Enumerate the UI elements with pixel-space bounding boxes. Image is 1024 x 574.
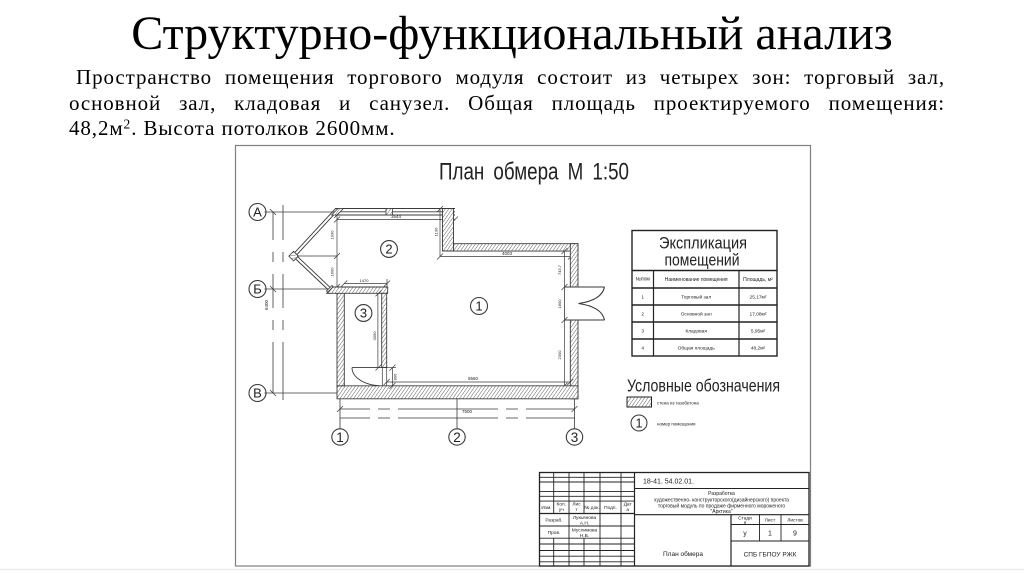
svg-text:художественно- конструкторског: художественно- конструкторского(дизайнер…: [654, 497, 789, 504]
svg-text:Торговый зал: Торговый зал: [681, 294, 711, 301]
svg-text:18-41. 54.02.01.: 18-41. 54.02.01.: [643, 479, 694, 486]
svg-text:В: В: [253, 386, 262, 401]
svg-text:Б: Б: [253, 282, 262, 297]
svg-text:Подп.: Подп.: [604, 505, 617, 511]
svg-text:2: 2: [453, 430, 461, 445]
svg-text:Площадь, м²: Площадь, м²: [743, 277, 773, 283]
svg-text:№пом: №пом: [636, 277, 651, 283]
svg-text:1: 1: [636, 416, 643, 430]
svg-text:Лис: Лис: [572, 502, 581, 508]
svg-text:Кладовая: Кладовая: [685, 329, 707, 335]
svg-text:Общая площадь: Общая площадь: [678, 346, 716, 352]
svg-text:Лист: Лист: [765, 518, 776, 524]
svg-text:Пров.: Пров.: [548, 530, 561, 536]
svg-text:СПБ ГБПОУ РЖК: СПБ ГБПОУ РЖК: [744, 552, 797, 559]
svg-text:Разработка: Разработка: [708, 491, 735, 497]
svg-text:Условные обозначения: Условные обозначения: [627, 375, 780, 395]
svg-text:1: 1: [768, 531, 772, 538]
svg-text:Разраб.: Разраб.: [545, 518, 562, 524]
svg-text:3: 3: [571, 430, 579, 445]
svg-text:5560: 5560: [468, 376, 479, 381]
svg-text:48,2м²: 48,2м²: [751, 346, 766, 352]
svg-text:уч: уч: [559, 508, 564, 513]
svg-text:1930: 1930: [330, 230, 335, 240]
svg-text:17,08м²: 17,08м²: [750, 312, 767, 318]
svg-text:7500: 7500: [462, 409, 473, 414]
svg-text:4003: 4003: [502, 251, 513, 256]
svg-text:2: 2: [385, 242, 392, 257]
svg-text:А: А: [253, 205, 262, 220]
svg-text:3544: 3544: [391, 214, 402, 219]
svg-text:Муслимова: Муслимова: [572, 528, 598, 534]
svg-text:5,95м²: 5,95м²: [751, 329, 766, 335]
svg-text:я: я: [744, 521, 747, 526]
svg-text:2: 2: [641, 312, 644, 318]
svg-text:1130: 1130: [434, 227, 439, 236]
svg-text:у: у: [743, 531, 747, 538]
svg-text:743,7: 743,7: [557, 264, 562, 275]
svg-text:Лукьянова: Лукьянова: [573, 515, 597, 521]
svg-text:25,17м²: 25,17м²: [750, 295, 767, 301]
svg-text:План обмера М 1:50: План обмера М 1:50: [439, 159, 629, 186]
svg-text:А.Н.: А.Н.: [580, 521, 589, 527]
svg-text:Н.В.: Н.В.: [580, 533, 589, 539]
svg-text:1: 1: [336, 430, 344, 445]
svg-text:Изм.: Изм.: [541, 505, 551, 511]
svg-text:помещений: помещений: [665, 251, 740, 270]
svg-text:Основной зал: Основной зал: [681, 311, 712, 318]
svg-text:стена из газобетона: стена из газобетона: [657, 401, 699, 406]
svg-text:Дат: Дат: [624, 502, 633, 508]
svg-text:3: 3: [641, 329, 644, 335]
svg-text:Наименование помещения: Наименование помещения: [665, 277, 728, 283]
svg-text:2300: 2300: [557, 350, 562, 360]
svg-text:1600: 1600: [330, 267, 335, 277]
svg-text:6400: 6400: [264, 299, 269, 310]
svg-text:Кол.: Кол.: [557, 502, 567, 508]
svg-text:3090: 3090: [372, 331, 377, 341]
svg-text:а: а: [626, 508, 629, 513]
svg-text:896: 896: [393, 373, 398, 380]
svg-text:1800: 1800: [557, 299, 562, 309]
svg-text:4: 4: [641, 346, 644, 352]
svg-text:1470: 1470: [360, 278, 370, 283]
svg-text:"Арктика": "Арктика": [710, 509, 732, 515]
svg-text:9: 9: [793, 531, 797, 538]
svg-text:№ док.: № док.: [584, 505, 599, 511]
svg-text:1: 1: [475, 299, 482, 314]
svg-text:1: 1: [641, 295, 644, 301]
svg-text:3: 3: [360, 306, 367, 321]
svg-text:номер помещения: номер помещения: [657, 422, 696, 427]
svg-text:План обмера: План обмера: [663, 550, 703, 558]
svg-text:Листов: Листов: [787, 518, 803, 524]
